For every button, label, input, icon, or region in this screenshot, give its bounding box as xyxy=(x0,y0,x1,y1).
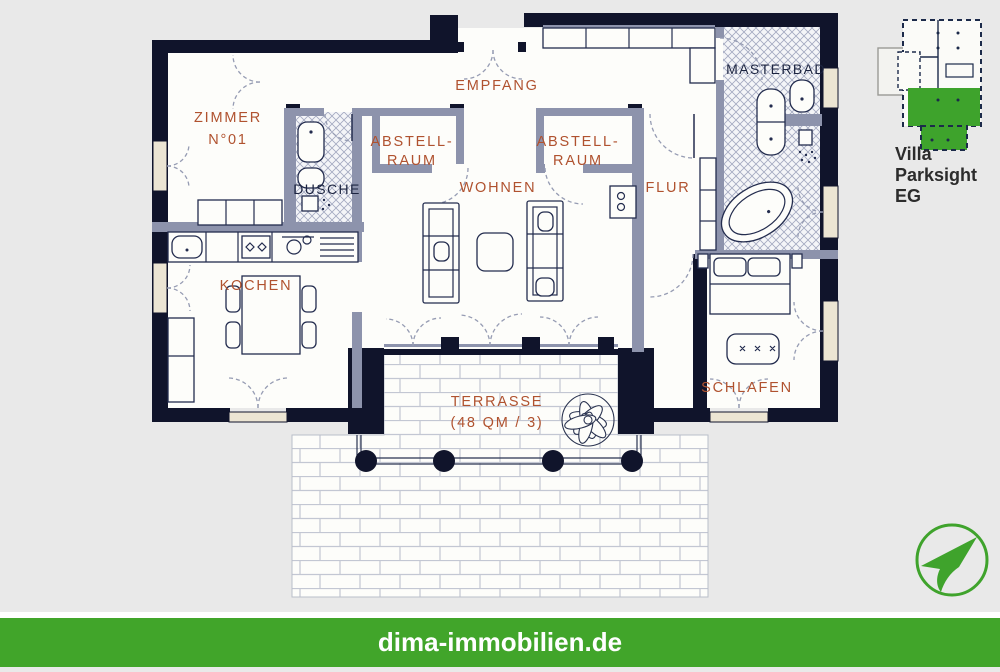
label-wohnen: WOHNEN xyxy=(460,180,537,196)
label-dusche: DUSCHE xyxy=(293,181,361,197)
label-abstell-right-line2: RAUM xyxy=(553,153,603,169)
footer-bar: dima-immobilien.de xyxy=(0,618,1000,667)
kitchen-counter-icon xyxy=(168,232,358,262)
label-zimmer-line2: N°01 xyxy=(208,132,248,148)
label-abstell-left-line2: RAUM xyxy=(387,153,437,169)
bed-icon xyxy=(698,254,802,314)
label-kochen: KOCHEN xyxy=(220,278,293,294)
label-abstell-right-line1: ABSTELL- xyxy=(537,134,620,150)
label-flur: FLUR xyxy=(645,180,690,196)
label-terrasse-line2: (48 QM / 3) xyxy=(450,415,543,431)
label-terrasse-line1: TERRASSE xyxy=(451,394,544,410)
floor-plan-image: ZIMMER N°01 EMPFANG MASTERBAD ABSTELL- R… xyxy=(0,0,1000,667)
label-abstell-left-line1: ABSTELL- xyxy=(371,134,454,150)
label-masterbad: MASTERBAD xyxy=(726,61,826,77)
label-schlafen: SCHLAFEN xyxy=(701,380,793,396)
label-zimmer-line1: ZIMMER xyxy=(194,110,262,126)
thumbnail-highlight-eg xyxy=(908,88,980,126)
wardrobe-zimmer-icon xyxy=(198,200,282,225)
heater-icon xyxy=(610,186,636,218)
coffee-table-icon xyxy=(477,233,513,271)
kitchen-cabinet-icon xyxy=(168,318,194,402)
flur-closet-icon xyxy=(700,158,716,250)
project-title: Villa Parksight EG xyxy=(895,144,983,207)
label-empfang: EMPFANG xyxy=(455,78,539,94)
footer-website: dima-immobilien.de xyxy=(378,627,622,658)
bench-icon xyxy=(727,334,779,364)
